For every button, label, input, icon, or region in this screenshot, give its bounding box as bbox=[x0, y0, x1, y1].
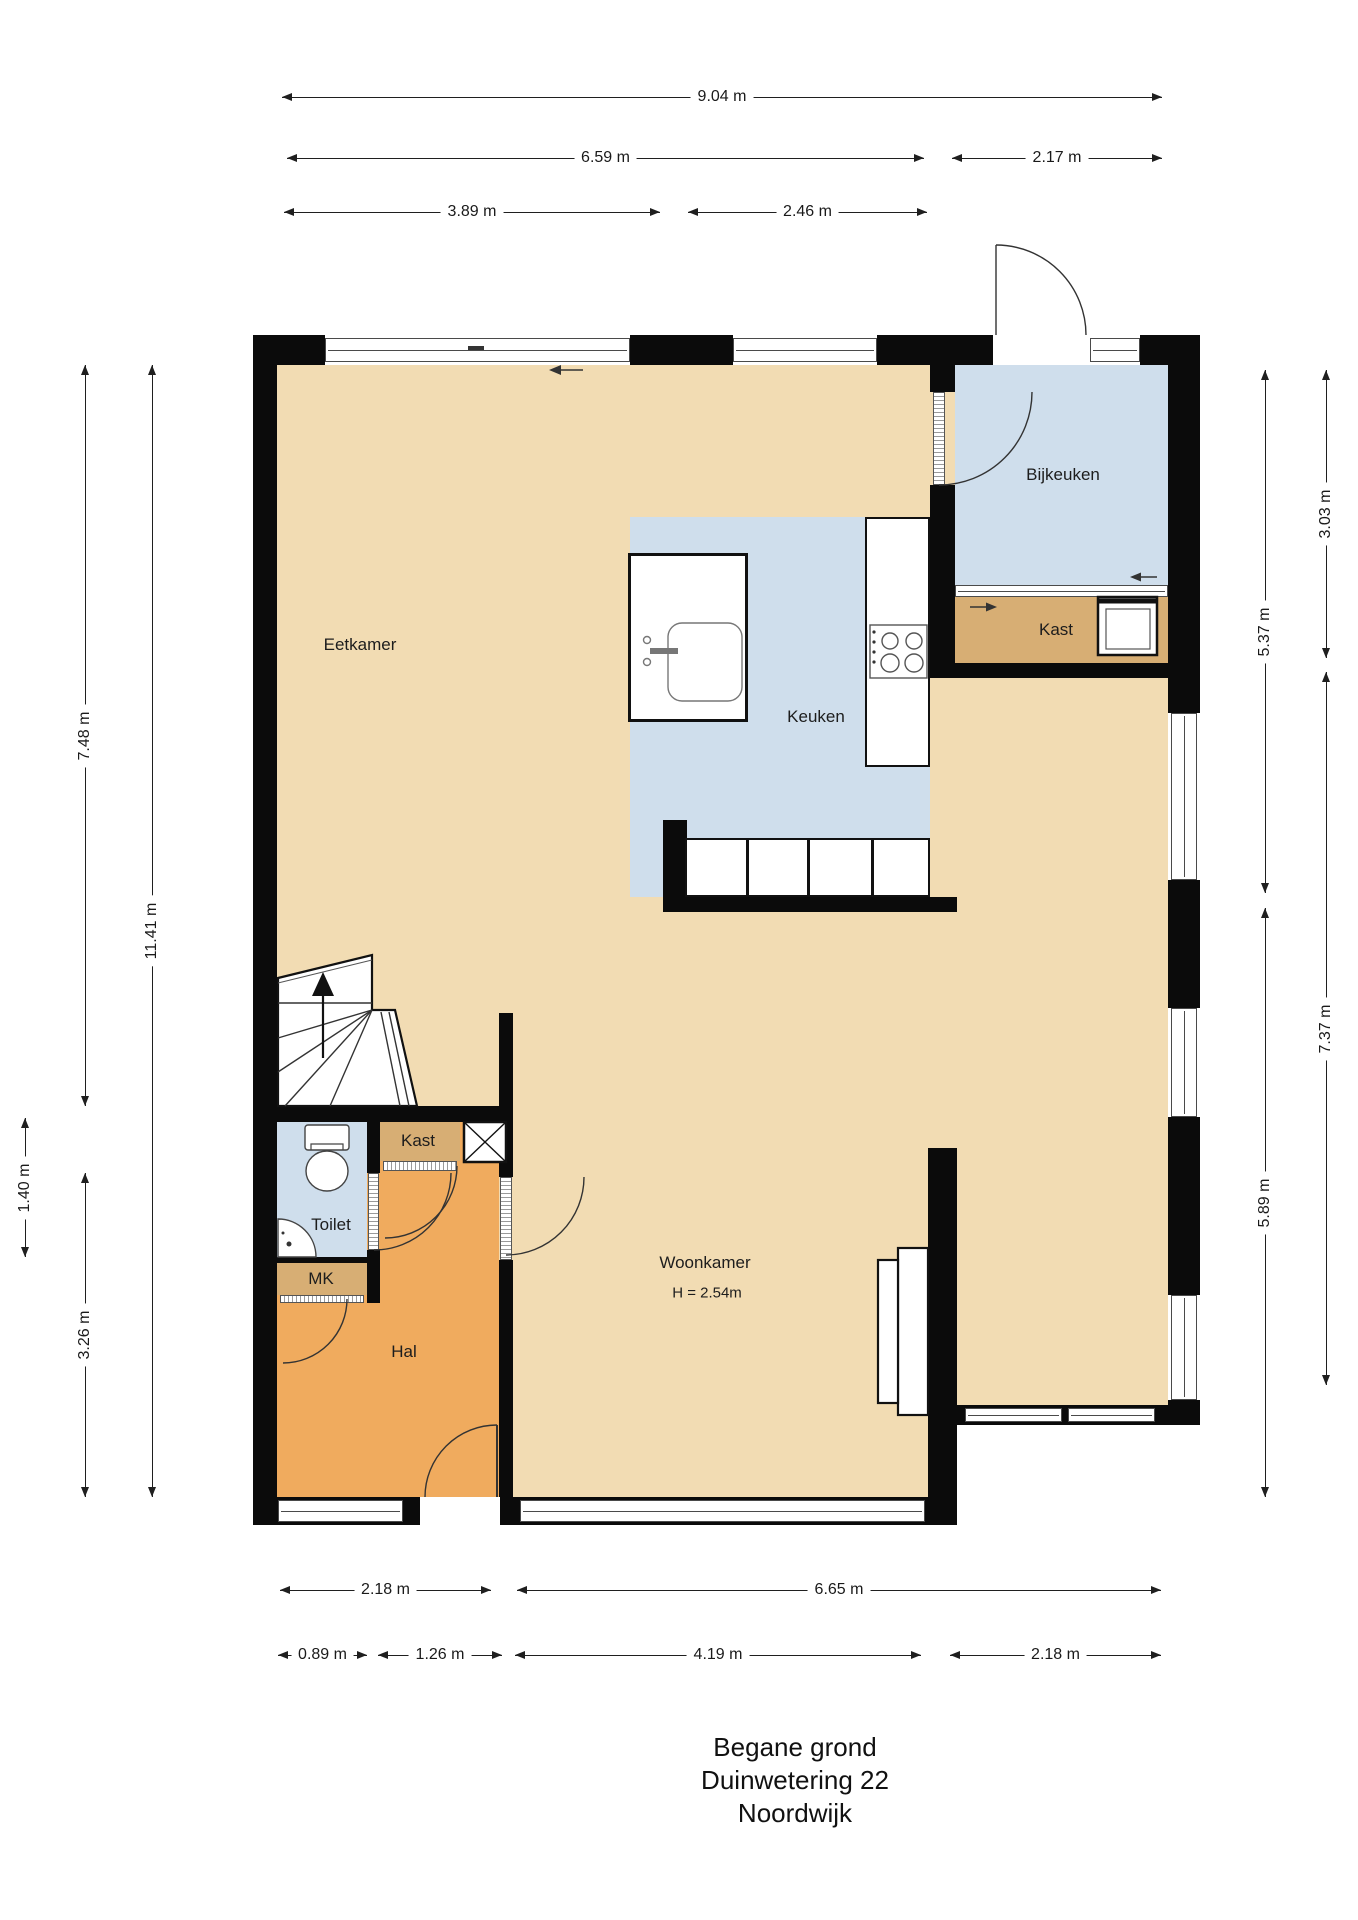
dim-left-748: 7.48 m bbox=[85, 365, 86, 1106]
wall-below-utility-closet bbox=[930, 663, 1168, 678]
window-entry-sidelight bbox=[1090, 338, 1140, 362]
entrance-door-arc bbox=[996, 245, 1086, 335]
dim-left-140: 1.40 m bbox=[25, 1118, 26, 1257]
window-right-1 bbox=[1171, 713, 1197, 880]
dim-top-217: 2.17 m bbox=[952, 158, 1162, 159]
window-right-2 bbox=[1171, 1008, 1197, 1117]
dim-bottom-126: 1.26 m bbox=[378, 1655, 502, 1656]
dim-bottom-419: 4.19 m bbox=[515, 1655, 921, 1656]
room-label-kast-bijkeuken: Kast bbox=[1039, 620, 1073, 640]
wall-livingroom-stub bbox=[928, 1148, 957, 1497]
room-label-kast-hal: Kast bbox=[401, 1131, 435, 1151]
wall-toilet-east-bottom bbox=[367, 1250, 380, 1303]
wall-hall-east-bottom bbox=[499, 1260, 513, 1497]
dim-top-389: 3.89 m bbox=[284, 212, 660, 213]
floorplan-page: Eetkamer Keuken Bijkeuken Kast Kast Toil… bbox=[0, 0, 1358, 1920]
window-top-2 bbox=[733, 338, 877, 362]
wall-top-pier-2 bbox=[877, 335, 993, 365]
door-hall-living-glazed bbox=[500, 1177, 512, 1260]
room-label-eetkamer: Eetkamer bbox=[324, 635, 397, 655]
window-bottom-living bbox=[520, 1500, 925, 1522]
counter-divider-1 bbox=[746, 840, 749, 895]
wall-kitchen-south bbox=[663, 897, 957, 912]
wall-right-c bbox=[1168, 1117, 1200, 1295]
kitchen-counter-east bbox=[865, 517, 930, 767]
room-label-keuken: Keuken bbox=[787, 707, 845, 727]
title-address: Duinwetering 22 bbox=[701, 1764, 889, 1797]
title-city: Noordwijk bbox=[701, 1797, 889, 1830]
door-closet-hall-glazed bbox=[383, 1161, 457, 1171]
window-bottom-hall bbox=[278, 1500, 403, 1522]
window-bottom-right-1 bbox=[965, 1408, 1062, 1422]
door-meter-cupboard-glazed bbox=[280, 1295, 364, 1303]
title-floor: Begane grond bbox=[701, 1731, 889, 1764]
window-right-3 bbox=[1171, 1295, 1197, 1400]
dim-bottom-218b: 2.18 m bbox=[950, 1655, 1161, 1656]
floor-kitchen-strip bbox=[630, 838, 663, 897]
plan-title: Begane grond Duinwetering 22 Noordwijk bbox=[701, 1731, 889, 1830]
dim-bottom-665: 6.65 m bbox=[517, 1590, 1161, 1591]
wall-left bbox=[253, 335, 277, 1525]
door-utility-glazed bbox=[933, 392, 945, 485]
counter-divider-2 bbox=[807, 840, 810, 895]
room-label-toilet: Toilet bbox=[311, 1215, 351, 1235]
dim-top-246: 2.46 m bbox=[688, 212, 927, 213]
wall-utility-west-bottom bbox=[930, 485, 955, 663]
counter-divider-3 bbox=[871, 840, 874, 895]
kitchen-island bbox=[628, 553, 748, 722]
dim-bottom-089: 0.89 m bbox=[278, 1655, 367, 1656]
wall-toilet-south bbox=[277, 1257, 367, 1263]
wall-right-b bbox=[1168, 880, 1200, 1008]
wall-kitchen-stub bbox=[663, 820, 687, 912]
window-bottom-right-2 bbox=[1068, 1408, 1155, 1422]
door-toilet-glazed bbox=[368, 1173, 379, 1250]
front-door-gap bbox=[420, 1497, 500, 1525]
room-label-bijkeuken: Bijkeuken bbox=[1026, 465, 1100, 485]
dim-right-537: 5.37 m bbox=[1265, 370, 1266, 893]
window-top-sliding bbox=[325, 338, 630, 362]
wall-under-stairs bbox=[277, 1106, 513, 1122]
wall-top-pier-1 bbox=[630, 335, 733, 365]
wall-utility-west-top bbox=[930, 365, 955, 392]
dim-right-303: 3.03 m bbox=[1326, 370, 1327, 658]
dim-left-1141: 11.41 m bbox=[152, 365, 153, 1497]
entrance-door-gap bbox=[993, 335, 1090, 365]
room-label-hal: Hal bbox=[391, 1342, 417, 1362]
dim-top-659: 6.59 m bbox=[287, 158, 924, 159]
dim-top-904: 9.04 m bbox=[282, 97, 1162, 98]
dim-left-326: 3.26 m bbox=[85, 1173, 86, 1497]
wall-toilet-east-top bbox=[367, 1122, 380, 1173]
floor-toilet bbox=[277, 1122, 367, 1257]
outside-notch bbox=[957, 1425, 1200, 1525]
room-label-ceiling-height: H = 2.54m bbox=[672, 1285, 742, 1302]
dim-bottom-218a: 2.18 m bbox=[280, 1590, 491, 1591]
window-handle-icon bbox=[468, 346, 484, 350]
room-label-mk: MK bbox=[308, 1269, 334, 1289]
wall-hall-east-top bbox=[499, 1013, 513, 1177]
dim-right-589: 5.89 m bbox=[1265, 908, 1266, 1497]
room-label-woonkamer: Woonkamer bbox=[659, 1253, 750, 1273]
wall-right-a bbox=[1168, 335, 1200, 713]
dim-right-737: 7.37 m bbox=[1326, 672, 1327, 1385]
sliding-partition-utility-closet bbox=[955, 585, 1168, 597]
